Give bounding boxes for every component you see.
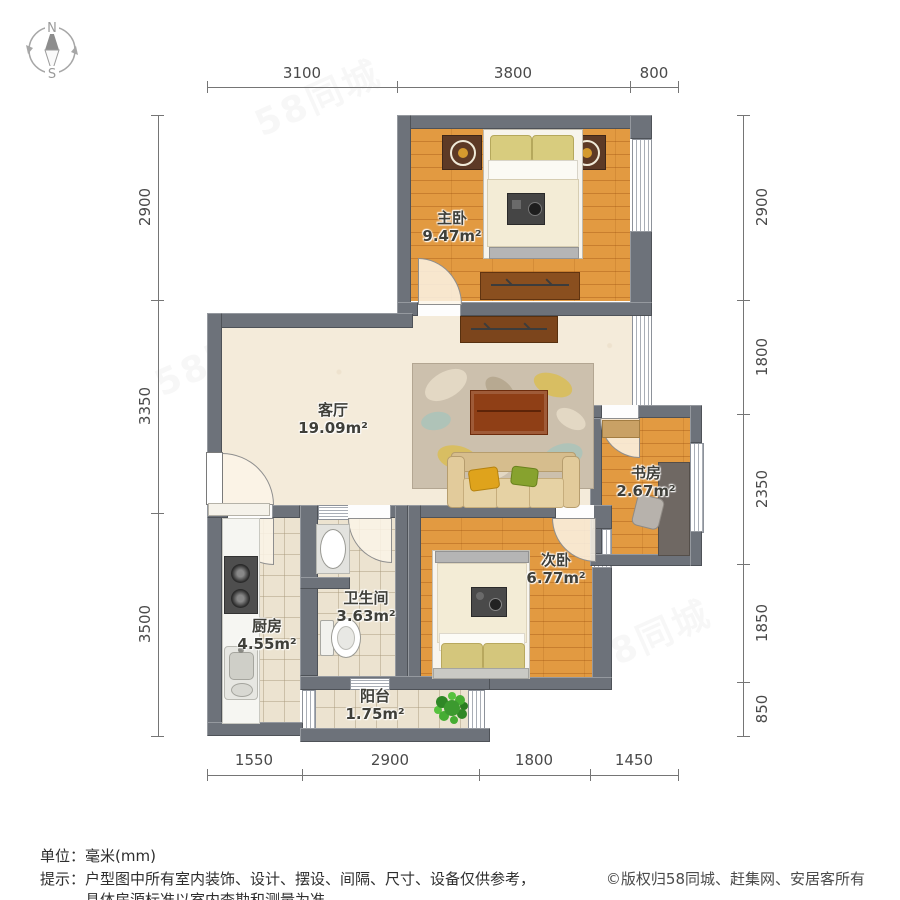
room-area: 6.77m² [508, 569, 604, 587]
dim-tick [630, 81, 631, 93]
dim-line-top [207, 87, 679, 88]
window [302, 690, 316, 730]
plant [444, 700, 460, 716]
dim-right-3: 2350 [753, 439, 771, 539]
room-label-master: 主卧 9.47m² [402, 209, 502, 245]
toilet-bowl [337, 626, 355, 650]
rug-leaf [420, 362, 473, 408]
room-label-living: 客厅 19.09m² [283, 401, 383, 437]
compass: N S [20, 12, 84, 84]
footer-unit-value: 毫米(mm) [85, 847, 156, 865]
dim-tick [737, 115, 750, 116]
headboard [433, 668, 529, 679]
sofa-pillow-yellow [468, 466, 501, 492]
dim-tick [151, 300, 164, 301]
room-name: 卫生间 [316, 589, 416, 607]
lamp-bulb [582, 148, 592, 158]
window [318, 505, 350, 520]
dim-tick [737, 300, 750, 301]
window [690, 443, 704, 533]
wall-segment [207, 313, 222, 453]
footer-tip-text1: 户型图中所有室内装饰、设计、摆设、间隔、尺寸、设备仅供参考， [85, 870, 535, 888]
washbasin-pedestal [316, 524, 350, 574]
dim-tick [737, 736, 750, 737]
burner-icon [231, 589, 250, 608]
dim-tick [151, 736, 164, 737]
dim-right-5: 850 [753, 659, 771, 759]
room-name: 阳台 [325, 687, 425, 705]
room-label-study: 书房 2.67m² [601, 464, 691, 500]
dim-right-4: 1850 [753, 573, 771, 673]
lamp-icon [450, 140, 476, 166]
cabinet-handle [471, 328, 547, 330]
room-name: 主卧 [402, 209, 502, 227]
wall-segment [690, 531, 702, 566]
wall-segment [630, 231, 652, 303]
nightstand [442, 135, 482, 170]
dim-tick [397, 81, 398, 93]
footer-unit: 单位：毫米(mm) [40, 845, 156, 866]
dim-left-2: 3350 [136, 356, 154, 456]
dim-tick [590, 769, 591, 781]
room-area: 19.09m² [283, 419, 383, 437]
room-label-bath: 卫生间 3.63m² [316, 589, 416, 625]
dim-tick [207, 81, 208, 93]
footer-copyright: ©版权归58同城、赶集网、安居客所有 [520, 868, 865, 889]
room-area: 2.67m² [601, 482, 691, 500]
dim-tick [151, 115, 164, 116]
sink-basin [229, 652, 254, 680]
compass-south-label: S [48, 67, 56, 82]
sofa [447, 450, 578, 511]
dim-top-1: 3100 [252, 64, 352, 82]
dim-tick [737, 564, 750, 565]
dim-right-1: 2900 [753, 157, 771, 257]
tv-cabinet [460, 316, 558, 343]
wall-segment [397, 115, 652, 129]
entrance-door-leaf [206, 452, 223, 505]
dim-top-3: 800 [604, 64, 704, 82]
dim-line-bottom [207, 775, 679, 776]
dim-tick [479, 769, 480, 781]
dim-tick [207, 769, 208, 781]
rug-leaf [553, 403, 590, 435]
floorplan-canvas: 58同城 58同城 58同城 58同城 58同城 58同城 N S 3100 3… [0, 0, 900, 900]
window [632, 315, 652, 409]
kettle [231, 683, 253, 697]
bed-tray-dish [528, 202, 542, 216]
room-name: 次卧 [508, 551, 604, 569]
room-label-second: 次卧 6.77m² [508, 551, 604, 587]
dim-left-1: 2900 [136, 157, 154, 257]
wall-segment [460, 302, 652, 316]
footer-tip-label: 提示： [40, 870, 85, 888]
dim-tick [151, 513, 164, 514]
wall-segment [207, 313, 413, 328]
wall-segment [300, 577, 350, 589]
dim-left-3: 3500 [136, 574, 154, 674]
dim-tick [678, 769, 679, 781]
wall-segment [272, 505, 300, 518]
bed-tray-item [512, 200, 521, 209]
bed-tray [507, 193, 545, 225]
window [632, 139, 652, 233]
dresser-handle [491, 284, 569, 286]
washbasin [320, 529, 346, 569]
room-area: 4.55m² [217, 635, 317, 653]
dresser [480, 272, 580, 300]
wall-segment [690, 405, 702, 443]
entrance-mat [208, 503, 270, 516]
kitchen-sink [224, 646, 258, 700]
room-area: 3.63m² [316, 607, 416, 625]
room-label-kitchen: 厨房 4.55m² [217, 617, 317, 653]
room-name: 书房 [601, 464, 691, 482]
dim-tick [737, 414, 750, 415]
pillow [483, 643, 525, 671]
window [468, 690, 485, 730]
dim-bottom-4: 1450 [584, 751, 684, 769]
lamp-bulb [458, 148, 468, 158]
dim-tick [302, 769, 303, 781]
wall-segment [300, 728, 490, 742]
burner-icon [231, 564, 250, 583]
pillow [532, 135, 574, 163]
footer-tip-line2: 具体房源标准以室内查勘和测量为准。 [85, 889, 340, 900]
stove [224, 556, 258, 614]
watermark: 58同城 [245, 45, 389, 147]
living-room-floor-nook [600, 315, 632, 417]
dim-bottom-2: 2900 [340, 751, 440, 769]
rug-leaf [420, 410, 453, 433]
footer-unit-label: 单位： [40, 847, 85, 865]
wall-segment [207, 722, 303, 736]
door-opening [602, 405, 638, 418]
dim-right-2: 1800 [753, 307, 771, 407]
dim-tick [678, 81, 679, 93]
door-opening [348, 505, 390, 518]
coffee-table-line [477, 410, 541, 412]
footer-tip-line1: 提示：户型图中所有室内装饰、设计、摆设、间隔、尺寸、设备仅供参考， [40, 868, 535, 889]
dim-line-right [743, 115, 744, 736]
dim-line-left [158, 115, 159, 736]
dim-top-2: 3800 [463, 64, 563, 82]
bed-tray-item [476, 592, 484, 600]
room-area: 1.75m² [325, 705, 425, 723]
room-name: 厨房 [217, 617, 317, 635]
pillow [490, 135, 532, 163]
wall-segment [630, 115, 652, 139]
coffee-table [470, 390, 548, 435]
bed-bench [489, 247, 579, 259]
study-cabinet [602, 420, 640, 438]
bed-tray [471, 587, 507, 617]
dim-bottom-1: 1550 [204, 751, 304, 769]
sofa-armrest [562, 456, 580, 508]
room-name: 客厅 [283, 401, 383, 419]
room-label-balcony: 阳台 1.75m² [325, 687, 425, 723]
room-area: 9.47m² [402, 227, 502, 245]
pillow [441, 643, 483, 671]
dim-bottom-3: 1800 [484, 751, 584, 769]
compass-north-label: N [47, 21, 57, 36]
bed-tray-dish [489, 598, 502, 611]
dim-tick [737, 682, 750, 683]
sofa-pillow-green [510, 465, 539, 487]
